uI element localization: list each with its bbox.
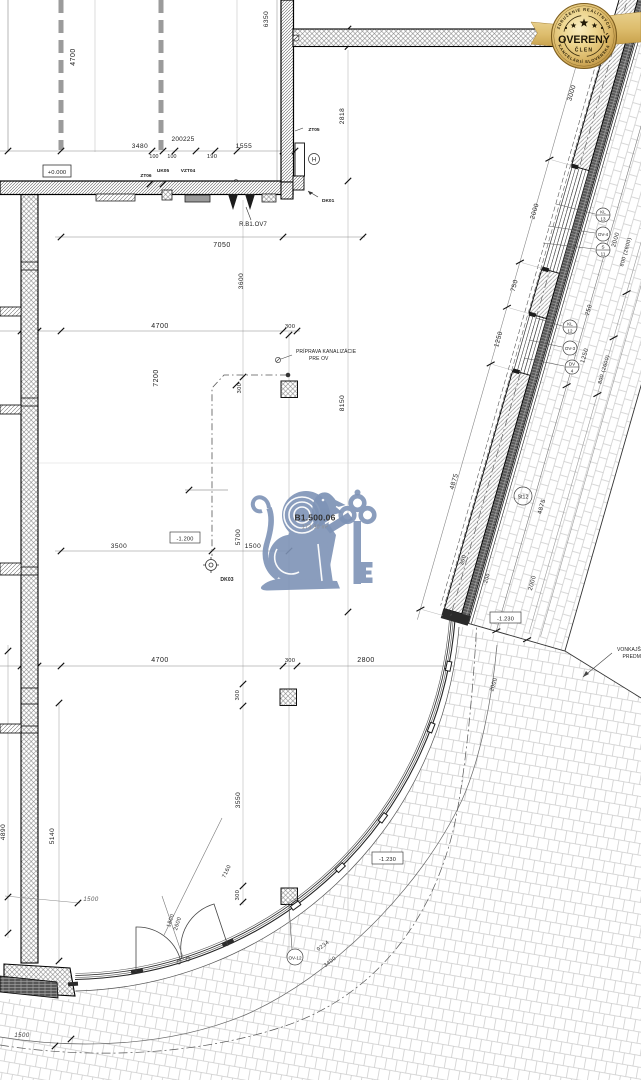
svg-text:PRÍPRAVA KANALIZÁCIE: PRÍPRAVA KANALIZÁCIE — [296, 348, 357, 355]
svg-text:6350: 6350 — [263, 11, 270, 27]
svg-text:KL: KL — [567, 322, 573, 327]
svg-text:200225: 200225 — [172, 136, 195, 143]
svg-text:300: 300 — [235, 890, 241, 901]
svg-text:300: 300 — [285, 658, 295, 664]
svg-text:300: 300 — [235, 690, 241, 701]
svg-text:1500: 1500 — [14, 1033, 30, 1039]
svg-text:-1.230: -1.230 — [497, 617, 514, 623]
svg-text:St12: St12 — [518, 495, 529, 501]
svg-text:173,90 m²: 173,90 m² — [302, 525, 329, 531]
svg-text:8150: 8150 — [339, 395, 346, 411]
svg-text:4700: 4700 — [70, 48, 77, 66]
svg-text:190: 190 — [207, 154, 217, 160]
svg-text:DK03: DK03 — [220, 577, 233, 583]
svg-text:2800: 2800 — [357, 657, 375, 664]
svg-text:UK05: UK05 — [157, 168, 170, 174]
svg-text:H: H — [312, 158, 316, 164]
svg-text:-1.200: -1.200 — [176, 537, 193, 543]
svg-text:R.B1.OV7: R.B1.OV7 — [239, 222, 267, 228]
svg-text:S: S — [601, 245, 604, 250]
svg-text:1500: 1500 — [245, 543, 261, 550]
svg-text:-1.230: -1.230 — [379, 857, 396, 863]
svg-text:3480: 3480 — [132, 143, 148, 150]
svg-text:7200: 7200 — [153, 369, 160, 387]
svg-text:4700: 4700 — [151, 323, 169, 330]
svg-text:100: 100 — [167, 154, 176, 160]
svg-text:4890: 4890 — [0, 824, 7, 840]
svg-text:PREDM: PREDM — [622, 654, 641, 660]
svg-text:VONKAJŠ: VONKAJŠ — [617, 646, 641, 653]
svg-text:300: 300 — [285, 324, 295, 330]
svg-text:PRE OV: PRE OV — [309, 356, 329, 362]
svg-text:3550: 3550 — [235, 792, 242, 808]
svg-text:13: 13 — [600, 217, 606, 222]
svg-text:100: 100 — [149, 154, 158, 160]
svg-text:300: 300 — [237, 383, 243, 394]
svg-text:OV-3: OV-3 — [565, 346, 576, 351]
svg-text:VZT04: VZT04 — [181, 168, 196, 174]
svg-text:ZT06: ZT06 — [140, 173, 152, 179]
svg-text:B1.500.06: B1.500.06 — [294, 513, 335, 523]
svg-text:1500: 1500 — [83, 897, 99, 903]
svg-text:+0.000: +0.000 — [48, 170, 67, 176]
svg-text:ČLEN: ČLEN — [575, 47, 593, 54]
svg-text:DV: DV — [569, 362, 575, 367]
svg-text:2818: 2818 — [339, 108, 346, 124]
svg-text:7050: 7050 — [213, 242, 231, 249]
svg-text:OV-4: OV-4 — [598, 232, 609, 237]
svg-text:ZT05: ZT05 — [308, 127, 320, 133]
svg-text:1555: 1555 — [236, 143, 252, 150]
svg-text:OVERENÝ: OVERENÝ — [558, 33, 610, 46]
svg-text:KL: KL — [600, 210, 606, 215]
svg-text:5700: 5700 — [235, 529, 242, 545]
svg-text:4700: 4700 — [151, 657, 169, 664]
svg-text:11: 11 — [601, 252, 606, 257]
svg-text:3500: 3500 — [111, 543, 127, 550]
svg-text:DK01: DK01 — [322, 198, 335, 204]
svg-text:OV-12: OV-12 — [288, 956, 301, 961]
svg-text:12: 12 — [567, 329, 573, 334]
svg-text:3600: 3600 — [238, 273, 245, 289]
svg-text:5140: 5140 — [49, 828, 56, 844]
